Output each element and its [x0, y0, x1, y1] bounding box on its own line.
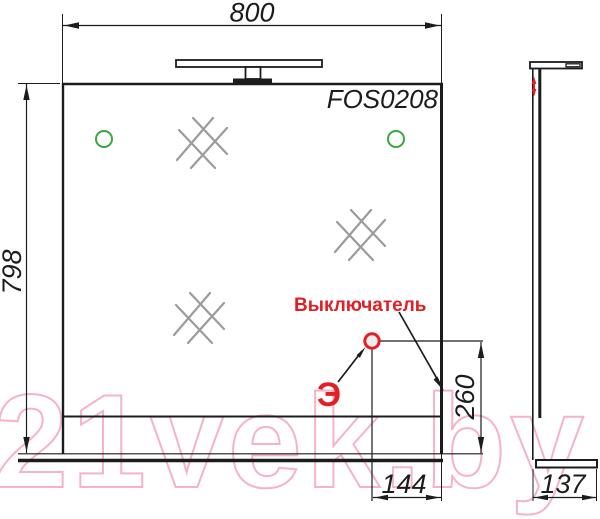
dim-switch-height-value: 260: [450, 374, 480, 420]
dim-height-798: 798: [0, 84, 60, 454]
side-profile-outline: [533, 69, 597, 468]
side-view: 137: [530, 62, 597, 501]
mirror-front-outline: [18, 83, 483, 461]
green-marker-right-icon: [388, 131, 404, 147]
switch-leader-arrow: [399, 312, 444, 391]
dim-height-value: 798: [0, 249, 27, 294]
electric-symbol: Э: [317, 376, 341, 414]
mirror-dimension-drawing: FOS0208: [0, 0, 600, 519]
switch-label: Выключатель: [294, 295, 426, 316]
dim-switch-offset-value: 144: [381, 469, 426, 499]
model-code: FOS0208: [327, 84, 439, 114]
dim-width-value: 800: [229, 0, 274, 28]
switch-point-circle-icon: [365, 334, 379, 348]
hatch-mark-icon: [174, 293, 224, 343]
hatch-mark-icon: [335, 210, 385, 260]
shelf-side-outline: [536, 460, 597, 468]
dim-switch-height-260: 260: [450, 342, 484, 453]
lamp-front-icon: [176, 60, 322, 84]
front-view: FOS0208: [18, 60, 483, 461]
technical-drawing-page: 21vek.by FOS0208: [0, 0, 600, 519]
dim-depth-value: 137: [540, 469, 586, 499]
electric-leader-arrow: [338, 347, 366, 382]
hatch-mark-icon: [177, 118, 227, 168]
dim-depth-137: 137: [533, 469, 597, 501]
green-marker-left-icon: [96, 131, 112, 147]
lamp-side-icon: [530, 62, 582, 69]
